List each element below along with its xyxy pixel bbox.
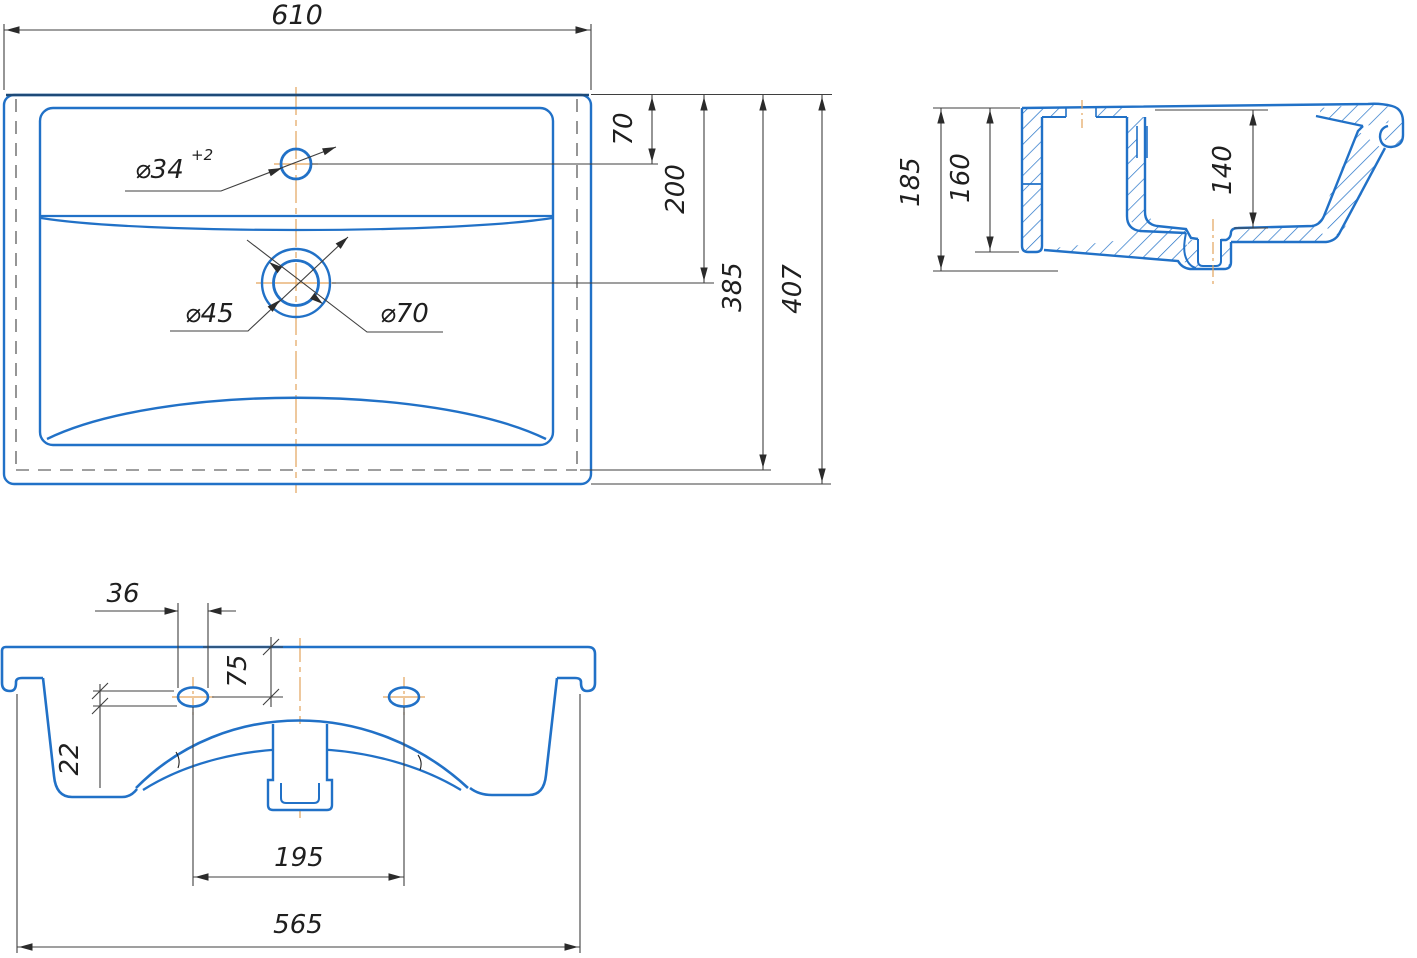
dim-drain-offset-label: 200 (661, 164, 691, 214)
dim-overall-height-label: 185 (896, 157, 926, 207)
dim-rim-to-hole: 75 (203, 637, 283, 707)
dim-body-width-label: 565 (273, 910, 323, 940)
basin-outer-contour (4, 95, 591, 484)
drain-inner-dia-label: ⌀45 (185, 299, 234, 329)
faucet-dia-label: ⌀34 (135, 155, 184, 185)
top-view: ⌀34 +2 ⌀45 ⌀70 610 (4, 0, 832, 493)
dim-overall-width: 610 (4, 0, 591, 90)
dim-faucet-offset-label: 70 (609, 112, 639, 145)
dim-mount-hole-height-label: 22 (55, 742, 85, 775)
dim-mount-hole-width: 36 (95, 579, 236, 688)
dim-right-stack: 70 200 385 407 (312, 95, 832, 485)
drain-outer-dia-label: ⌀70 (380, 299, 429, 329)
drain-outlet-hole (1199, 239, 1220, 267)
dim-back-wall-height-label: 160 (946, 153, 976, 203)
dim-mount-hole-width-label: 36 (106, 579, 139, 609)
front-view: 36 75 22 195 565 (2, 579, 595, 953)
drain-channel-fill (268, 724, 332, 810)
dim-bowl-depth-label: 140 (1208, 145, 1238, 195)
dim-inner-depth-label: 385 (718, 262, 748, 312)
drawing-sheet: ⌀34 +2 ⌀45 ⌀70 610 (0, 0, 1417, 958)
dim-overall-width-label: 610 (271, 0, 323, 31)
dim-mount-hole-height: 22 (55, 683, 177, 788)
technical-drawing-canvas: ⌀34 +2 ⌀45 ⌀70 610 (0, 0, 1417, 958)
dim-hole-spacing-label: 195 (274, 843, 324, 873)
dim-rim-to-hole-label: 75 (223, 654, 253, 687)
dim-overall-depth-label: 407 (778, 264, 808, 314)
faucet-dia-tolerance: +2 (191, 146, 213, 164)
section-view: 185 160 140 (896, 100, 1403, 284)
